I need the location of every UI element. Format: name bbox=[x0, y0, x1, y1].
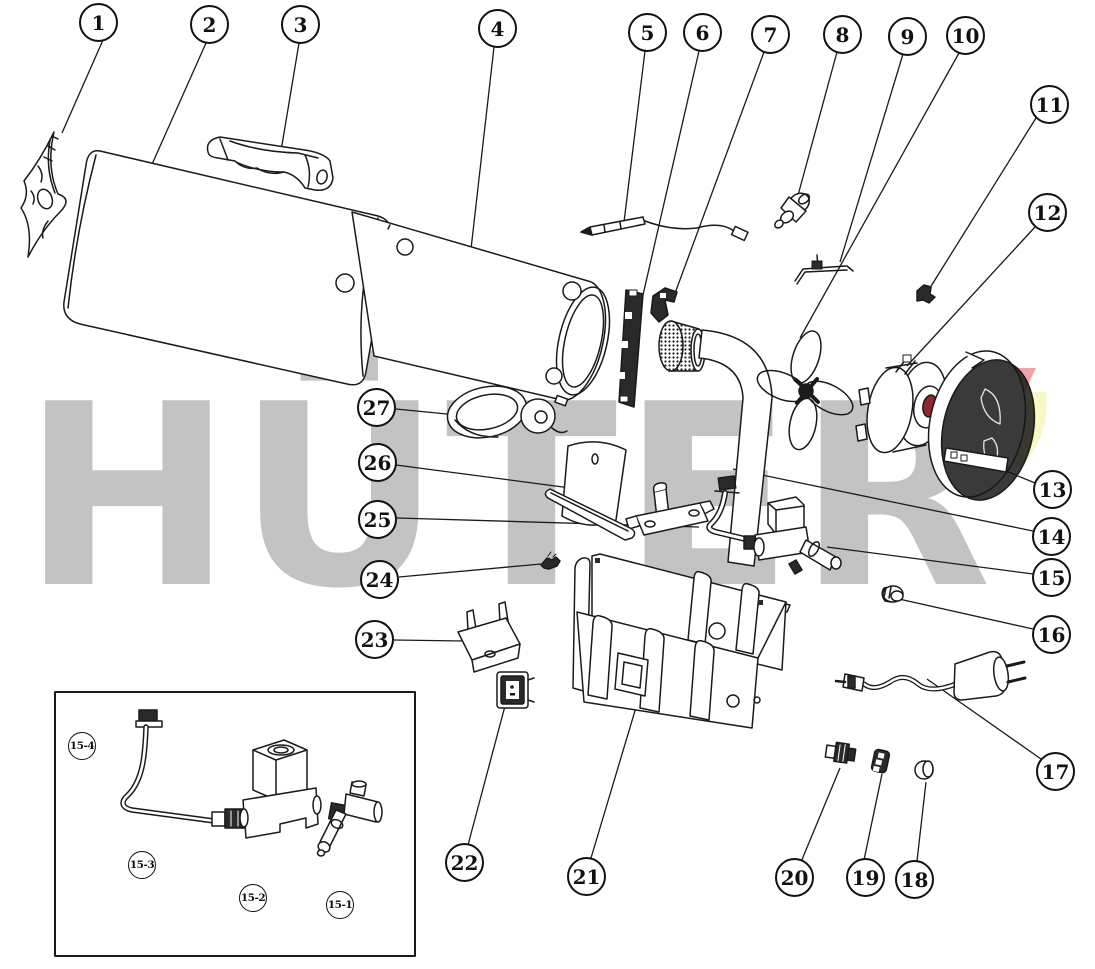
callout-6: 6 bbox=[683, 13, 722, 52]
callout-25: 25 bbox=[358, 500, 397, 539]
part-support-bracket bbox=[458, 602, 520, 672]
callout-17: 17 bbox=[1036, 752, 1075, 791]
exploded-parts-diagram: HÜTER bbox=[0, 0, 1095, 969]
part-burner-mesh bbox=[659, 321, 705, 371]
callout-22: 22 bbox=[445, 843, 484, 882]
callout-15-4: 15-4 bbox=[68, 732, 96, 760]
callout-15-1: 15-1 bbox=[326, 891, 354, 919]
part-small-bracket bbox=[651, 288, 677, 322]
part-cap bbox=[915, 761, 933, 779]
part-clip bbox=[917, 285, 935, 303]
callout-13: 13 bbox=[1033, 470, 1072, 509]
callout-7: 7 bbox=[751, 15, 790, 54]
callout-15-2: 15-2 bbox=[239, 884, 267, 912]
callout-9: 9 bbox=[888, 17, 927, 56]
callout-15-3: 15-3 bbox=[128, 851, 156, 879]
callout-1: 1 bbox=[79, 3, 118, 42]
part-power-cord bbox=[836, 652, 1025, 700]
part-igniter-electrode bbox=[581, 217, 748, 240]
part-mounting-strip bbox=[618, 290, 643, 407]
part-terminal-block bbox=[871, 749, 890, 774]
callout-24: 24 bbox=[360, 560, 399, 599]
inset-detail-box bbox=[55, 692, 415, 956]
part-front-grille bbox=[21, 132, 66, 257]
part-deflector-plate bbox=[545, 442, 634, 540]
callout-10: 10 bbox=[946, 16, 985, 55]
part-rocker-switch bbox=[497, 672, 534, 708]
callout-12: 12 bbox=[1028, 193, 1067, 232]
callout-4: 4 bbox=[478, 9, 517, 48]
part-spring-clip bbox=[541, 552, 560, 569]
part-grommet bbox=[882, 586, 903, 602]
callout-8: 8 bbox=[823, 15, 862, 54]
callout-23: 23 bbox=[355, 620, 394, 659]
part-cylinder-front bbox=[64, 151, 391, 385]
callout-26: 26 bbox=[358, 443, 397, 482]
callout-18: 18 bbox=[895, 860, 934, 899]
callout-11: 11 bbox=[1030, 85, 1069, 124]
callout-14: 14 bbox=[1032, 517, 1071, 556]
callout-3: 3 bbox=[281, 5, 320, 44]
callout-20: 20 bbox=[775, 858, 814, 897]
callout-5: 5 bbox=[628, 13, 667, 52]
callout-21: 21 bbox=[567, 857, 606, 896]
callout-27: 27 bbox=[357, 388, 396, 427]
diagram-artwork bbox=[0, 0, 1095, 969]
part-base-housing bbox=[573, 554, 790, 728]
callout-2: 2 bbox=[190, 5, 229, 44]
callout-16: 16 bbox=[1032, 615, 1071, 654]
part-fitting bbox=[825, 741, 856, 764]
callout-19: 19 bbox=[846, 858, 885, 897]
callout-15: 15 bbox=[1032, 558, 1071, 597]
part-burner-bracket bbox=[626, 483, 714, 535]
part-spark-plug bbox=[773, 189, 813, 229]
part-cylinder-rear bbox=[352, 212, 619, 400]
